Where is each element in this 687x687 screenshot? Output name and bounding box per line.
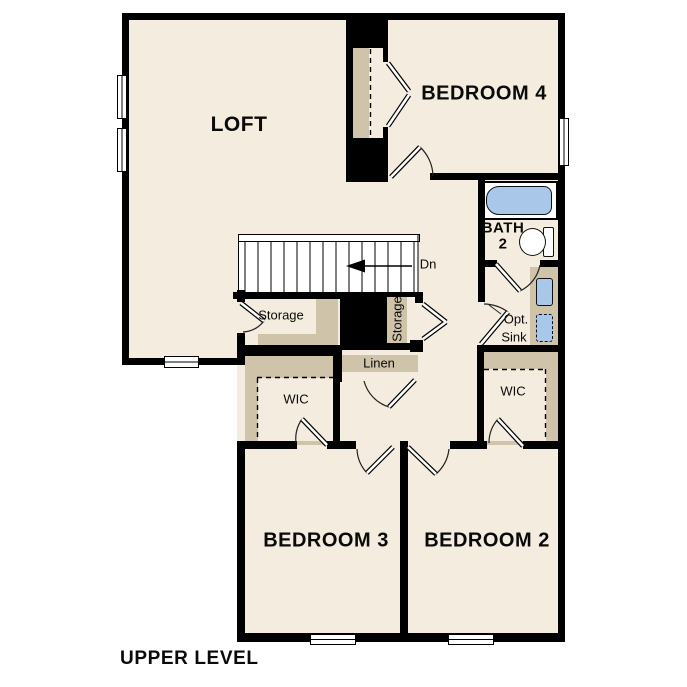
room-label-loft: LOFT: [211, 113, 268, 137]
label-stairs-down: Dn: [420, 257, 437, 272]
bedroom4-closet-floor: [369, 48, 383, 138]
stairs: [238, 242, 418, 292]
room-label-bedroom3: BEDROOM 3: [263, 530, 389, 553]
wall-top: [122, 13, 565, 20]
window-bedroom4: [559, 118, 569, 166]
wic-left-floor: [258, 378, 333, 441]
room-label-wic-left: WIC: [283, 392, 308, 407]
wall-storage-bottom: [237, 345, 342, 356]
wall-bedroom3-top-a: [237, 441, 297, 449]
bathtub: [486, 186, 552, 215]
stairs-railing: [238, 234, 420, 242]
room-label-bath-line2: 2: [499, 236, 508, 253]
wall-bath-left: [478, 178, 485, 302]
exterior-mask: [0, 365, 237, 687]
wall-bath-bottom-b: [540, 260, 565, 267]
window-bedroom2: [448, 634, 494, 645]
storage-closet-opening: [415, 303, 423, 340]
window-bedroom3: [310, 634, 356, 645]
wall-bath-bottom-a: [478, 260, 497, 267]
wall-left: [122, 13, 129, 365]
bedroom4-closet-shelf: [353, 48, 369, 138]
wall-wic-right-left: [477, 352, 484, 449]
wall-bedroom3-top-b: [327, 441, 356, 449]
room-label-bath-line1: BATH: [482, 220, 525, 237]
wall-storage-left-a: [237, 290, 245, 302]
wall-vestibule-stub: [410, 340, 423, 352]
understair-storage-shelf-vertical: [316, 299, 338, 346]
room-label-bedroom4: BEDROOM 4: [421, 83, 547, 106]
wall-bedroom3-left: [237, 441, 245, 642]
wall-vanity-bottom: [477, 345, 565, 352]
bedroom4-closet-opening: [383, 62, 388, 127]
wall-linen-left: [335, 345, 342, 382]
label-storage-under-stairs: Storage: [258, 308, 304, 323]
label-storage-closet: Storage: [390, 296, 405, 342]
room-label-bedroom2: BEDROOM 2: [424, 530, 550, 553]
optional-sink: [536, 314, 553, 342]
storage-closet-floor: [407, 297, 415, 343]
wall-bedroom2-top-b: [523, 441, 565, 449]
wall-right: [558, 13, 565, 642]
label-opt-sink-line2: Sink: [501, 330, 526, 345]
label-linen: Linen: [363, 356, 395, 371]
window-loft-left-upper: [117, 75, 127, 119]
room-label-wic-right: WIC: [500, 384, 525, 399]
plan-title: UPPER LEVEL: [120, 648, 259, 670]
wic-right-floor: [484, 369, 546, 441]
label-opt-sink-line1: Opt.: [504, 312, 529, 327]
floor-plan: LOFT BEDROOM 4 BEDROOM 3 BEDROOM 2 BATH …: [0, 0, 687, 687]
wall-bedroom-divider: [400, 441, 408, 637]
wall-bedroom4-bottom: [430, 173, 558, 180]
window-loft-left-lower: [117, 128, 127, 172]
sink: [536, 278, 553, 306]
window-loft-bottom: [164, 356, 199, 368]
